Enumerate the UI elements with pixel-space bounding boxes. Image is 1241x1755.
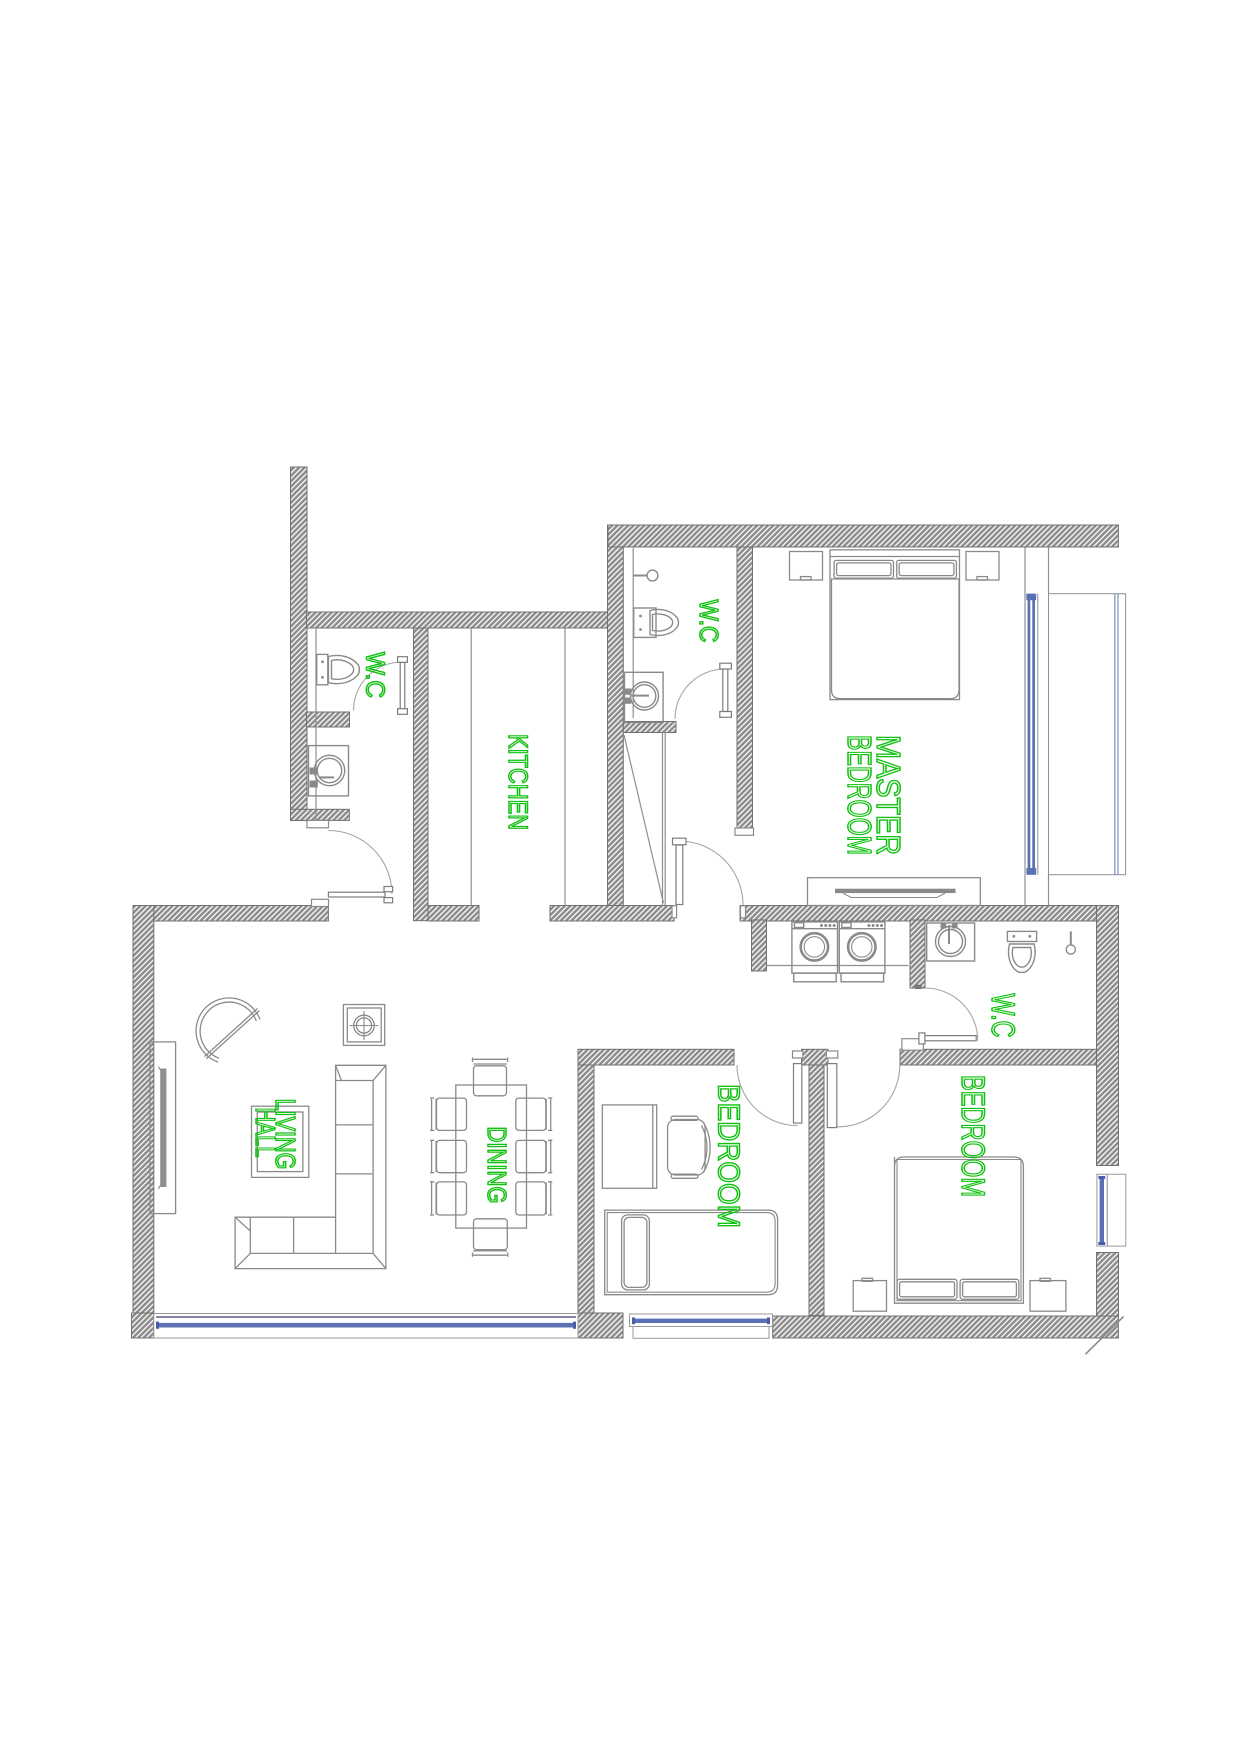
- svg-text:BEDROOM: BEDROOM: [712, 1084, 747, 1228]
- svg-text:BEDROOM: BEDROOM: [841, 735, 878, 855]
- svg-text:DINING: DINING: [482, 1127, 512, 1204]
- svg-text:BEDROOM: BEDROOM: [955, 1075, 991, 1197]
- svg-text:W.C: W.C: [361, 652, 391, 698]
- svg-text:KITCHEN: KITCHEN: [503, 734, 533, 830]
- svg-text:W.C: W.C: [694, 600, 724, 643]
- svg-text:W.C: W.C: [985, 994, 1021, 1038]
- svg-text:HALL: HALL: [250, 1108, 281, 1158]
